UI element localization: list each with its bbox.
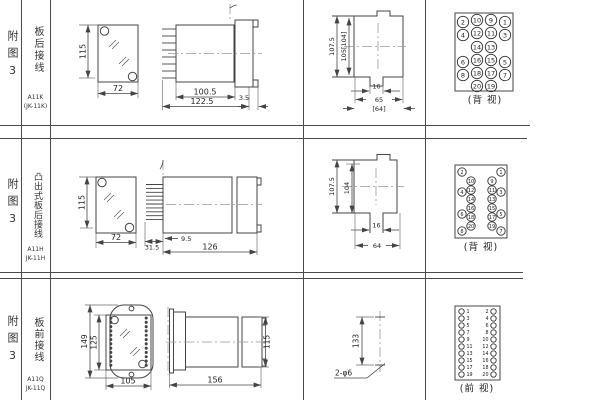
terminal-number: 2 [485, 309, 488, 315]
terminal-1 [459, 309, 464, 314]
terminal-number: 12 [468, 188, 474, 194]
row1-drawings-jk11k: 115 72 100.5 [0, 0, 600, 126]
dim-label-pins: 31.5 [145, 244, 159, 252]
front-view: 115 72 [78, 177, 137, 248]
mounting-plate [110, 305, 153, 378]
terminal-20 [491, 372, 496, 377]
terminal-number: 10 [468, 179, 474, 185]
terminals: 2101241416618208191131315517197 [458, 168, 505, 235]
mount-hole [111, 316, 119, 324]
terminal-number: 15 [467, 358, 473, 364]
panel-strip [170, 309, 174, 373]
glass-hatch [120, 329, 140, 356]
hole-note: 2-φ6 [335, 369, 352, 378]
mount-hole [98, 178, 106, 186]
terminal-number: 19 [467, 372, 473, 378]
terminal-number: 14 [468, 197, 474, 203]
terminals: 2109141211314136161558181772019 [457, 14, 510, 91]
terminal-number: 16 [482, 358, 488, 364]
dim-label-body: 100.5 [194, 88, 217, 97]
terminal-number: 18 [468, 215, 474, 221]
terminal-number: 6 [461, 58, 465, 66]
terminal-number: 10 [482, 337, 488, 343]
terminal-number: 10 [473, 16, 481, 24]
terminal-number: 3 [467, 316, 470, 322]
terminal-number: 13 [467, 351, 473, 357]
terminal-number: 5 [467, 323, 470, 329]
relay-body [163, 177, 232, 233]
side-view: 100.5 122.5 3.5 [162, 4, 268, 110]
terminal-number: 12 [482, 344, 488, 350]
dim-label-outer-h: 107.5 [328, 37, 336, 56]
terminal-number: 5 [499, 212, 502, 218]
latch-hook [230, 5, 237, 8]
dim-label-height: 115 [79, 44, 88, 59]
terminal-number: 20 [473, 82, 481, 90]
terminal-number: 16 [473, 56, 481, 64]
dim-label-height: 115 [78, 195, 87, 210]
terminal-number: 11 [467, 344, 473, 350]
terminal-10 [491, 337, 496, 342]
terminal-number: 6 [460, 212, 463, 218]
mount-hole [139, 360, 147, 368]
terminal-number: 4 [485, 316, 488, 322]
dim-label-total: 156 [207, 376, 222, 385]
terminal-number: 8 [485, 330, 488, 336]
terminal-number: 2 [460, 170, 463, 176]
dim-label-height: 115 [263, 335, 272, 350]
terminal-number: 9 [489, 16, 493, 24]
terminal-number: 8 [461, 71, 465, 79]
terminal-number: 1 [503, 18, 507, 26]
relay-dimension-drawing-page: 附图3 板后接线 A11K (JK-11K) 附图3 凸出式板后接线 A11H … [0, 0, 600, 400]
pins [146, 185, 163, 220]
terminal-number: 3 [503, 31, 507, 39]
mount-hole [100, 27, 108, 35]
terminal-15 [459, 358, 464, 363]
terminal-number: 1 [467, 309, 470, 315]
dim-label-inner-h: 104 [343, 182, 351, 194]
mount-hole [125, 223, 133, 231]
glass-hatch [109, 40, 129, 66]
terminal-number: 9 [467, 337, 470, 343]
dim-label-width: 72 [111, 233, 121, 242]
dim-label-w2: [64] [372, 105, 385, 113]
terminal-number: 1 [499, 170, 502, 176]
dim-label-outer-h: 107.5 [328, 177, 336, 196]
terminal-number: 15 [487, 56, 495, 64]
panel-cutout-view: 107.5 104 16 64 [328, 155, 404, 251]
dim-label-slot-w: 16 [372, 83, 380, 91]
terminal-6 [491, 323, 496, 328]
terminal-number: 5 [503, 58, 507, 66]
terminal-number: 20 [482, 372, 488, 378]
front-view: 115 72 [79, 25, 139, 98]
front-view: 149 125 105 [80, 305, 153, 390]
terminal-17 [459, 365, 464, 370]
terminal-4 [491, 316, 496, 321]
view-label: (背 视) [468, 94, 502, 106]
terminal-number: 14 [482, 351, 488, 357]
terminal-number: 16 [468, 206, 474, 212]
terminal-11 [459, 344, 464, 349]
terminal-number: 7 [503, 71, 507, 79]
terminal-number: 9 [490, 179, 493, 185]
terminal-number: 17 [487, 69, 495, 77]
screw-hole [129, 306, 134, 311]
terminal-number: 4 [460, 190, 463, 196]
row3-drawings-jk11q: 149 125 105 115 156 [0, 278, 600, 400]
terminal-number: 8 [460, 229, 463, 235]
view-label: (前 视) [460, 383, 494, 395]
dim-label-total: 122.5 [191, 97, 214, 106]
terminal-block-view: 2109141211314136161558181772019 (背 视) [455, 13, 513, 106]
dim-label-total: 126 [202, 243, 217, 252]
terminal-number: 2 [461, 18, 465, 26]
terminal-number: 3 [499, 190, 502, 196]
terminal-number: 18 [473, 69, 481, 77]
drill-holes-view: 133 2-φ6 [334, 311, 385, 378]
dim-label-height: 149 [80, 334, 89, 349]
terminal-number: 7 [467, 330, 470, 336]
dim-label-inner-height: 125 [90, 335, 99, 350]
terminal-9 [459, 337, 464, 342]
terminal-number: 7 [499, 229, 502, 235]
terminal-18 [491, 365, 496, 370]
view-label: (背 视) [464, 241, 498, 253]
dim-label-w: 65 [375, 96, 383, 104]
terminal-7 [459, 330, 464, 335]
panel-cutout-view: 107.5 105[104] 16 65 [64] [328, 11, 415, 113]
terminal-block-view: 1234567891011121314151617181920 (前 视) [455, 306, 500, 395]
dim-label-spacing: 133 [352, 334, 361, 349]
terminal-number: 13 [487, 43, 495, 51]
terminal-number: 11 [489, 188, 495, 194]
dim-label-width: 105 [120, 377, 135, 386]
dim-label-panel: 3.5 [239, 94, 249, 102]
terminal-number: 19 [487, 82, 495, 90]
dim-label-slot-w: 16 [372, 222, 380, 230]
terminal-3 [459, 316, 464, 321]
terminal-number: 17 [489, 215, 495, 221]
dim-label-w: 64 [373, 242, 381, 250]
terminal-number: 20 [468, 224, 474, 230]
terminal-number: 19 [489, 224, 495, 230]
latch-hook [160, 160, 163, 169]
terminal-14 [491, 351, 496, 356]
terminal-8 [491, 330, 496, 335]
terminal-2 [491, 309, 496, 314]
terminal-number: 17 [467, 365, 473, 371]
mount-block [174, 312, 186, 370]
terminal-block-outline [455, 306, 500, 380]
glass-hatch [104, 193, 124, 219]
dim-label-offset: 9.5 [181, 235, 191, 243]
terminal-number: 11 [487, 29, 495, 37]
terminal-number: 6 [485, 323, 488, 329]
terminal-number: 14 [473, 43, 481, 51]
dim-label-inner-h: 105[104] [340, 32, 348, 62]
terminal-16 [491, 358, 496, 363]
terminal-13 [459, 351, 464, 356]
terminal-number: 15 [489, 206, 495, 212]
terminal-19 [459, 372, 464, 377]
mount-hole [128, 72, 136, 80]
terminals: 1234567891011121314151617181920 [459, 309, 496, 378]
terminal-number: 4 [461, 31, 465, 39]
terminal-number: 13 [489, 197, 495, 203]
terminal-12 [491, 344, 496, 349]
row2-drawings-jk11h: 115 72 31.5 [0, 138, 600, 272]
side-view: 115 156 [166, 307, 272, 388]
terminal-5 [459, 323, 464, 328]
rear-block [237, 177, 257, 233]
row-separator-2a [0, 272, 523, 273]
terminal-number: 18 [482, 365, 488, 371]
side-view: 31.5 9.5 126 [145, 160, 262, 255]
dim-label-width: 72 [113, 84, 123, 93]
terminal-block-view: 2101241416618208191131315517197 (背 视) [455, 165, 507, 253]
terminal-number: 12 [473, 29, 481, 37]
